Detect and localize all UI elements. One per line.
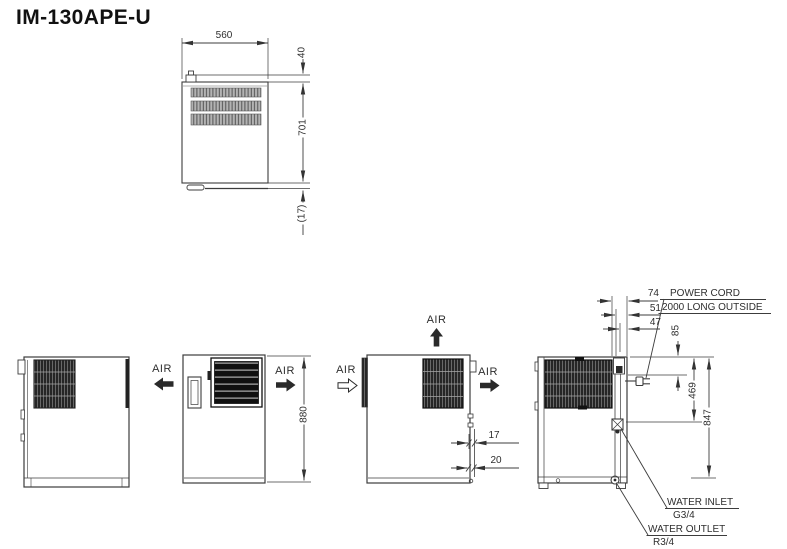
dim-pipe-17: 17 — [479, 430, 509, 442]
spec-drawing-page: IM-130APE-U 560 40 701 (17) AIR AIR AIR … — [0, 0, 787, 549]
dim-depth: 701 — [296, 107, 309, 147]
model-title: IM-130APE-U — [16, 6, 151, 30]
dim-height: 880 — [297, 394, 310, 434]
air-arrow-right-front-icon — [276, 379, 296, 392]
air-label-front-exhaust: AIR — [270, 365, 300, 377]
power-plug-icon — [636, 377, 643, 386]
top-view — [182, 38, 310, 235]
dim-pipe-20: 20 — [481, 455, 511, 467]
air-arrow-intake-icon — [338, 379, 357, 392]
water-outlet-size-label: R3/4 — [653, 537, 674, 549]
power-cord-label: POWER CORD — [670, 288, 740, 300]
air-arrow-up-icon — [430, 328, 443, 347]
air-label-left-exhaust: AIR — [147, 363, 177, 375]
top-vent-strips — [191, 88, 261, 125]
air-label-intake: AIR — [331, 364, 361, 376]
air-arrow-left-icon — [154, 378, 174, 391]
front-handle — [188, 377, 201, 408]
water-inlet-size-label: G3/4 — [673, 510, 695, 522]
rear-view — [535, 296, 771, 536]
air-arrow-right-side-icon — [480, 379, 500, 392]
air-label-top-exhaust: AIR — [422, 314, 452, 326]
side-grille — [423, 359, 463, 408]
drawing-canvas — [0, 0, 787, 549]
water-outlet-label: WATER OUTLET — [648, 524, 725, 536]
power-cord-length-label: 2000 LONG OUTSIDE — [662, 302, 763, 314]
water-inlet-label: WATER INLET — [667, 497, 733, 509]
dim-offset-51: 51 — [631, 303, 661, 315]
dim-offset-74: 74 — [629, 288, 659, 300]
dim-inlet-height: 469 — [686, 370, 699, 410]
air-label-side-exhaust: AIR — [473, 366, 503, 378]
dim-door-protrusion: (17) — [296, 193, 309, 233]
dim-cord-drop: 85 — [669, 310, 682, 350]
dim-overall-height: 847 — [701, 397, 714, 437]
dim-top-width: 560 — [204, 30, 244, 42]
left-side-view — [18, 357, 129, 487]
dim-rear-offset: 40 — [296, 32, 309, 72]
dim-offset-47: 47 — [631, 317, 661, 329]
